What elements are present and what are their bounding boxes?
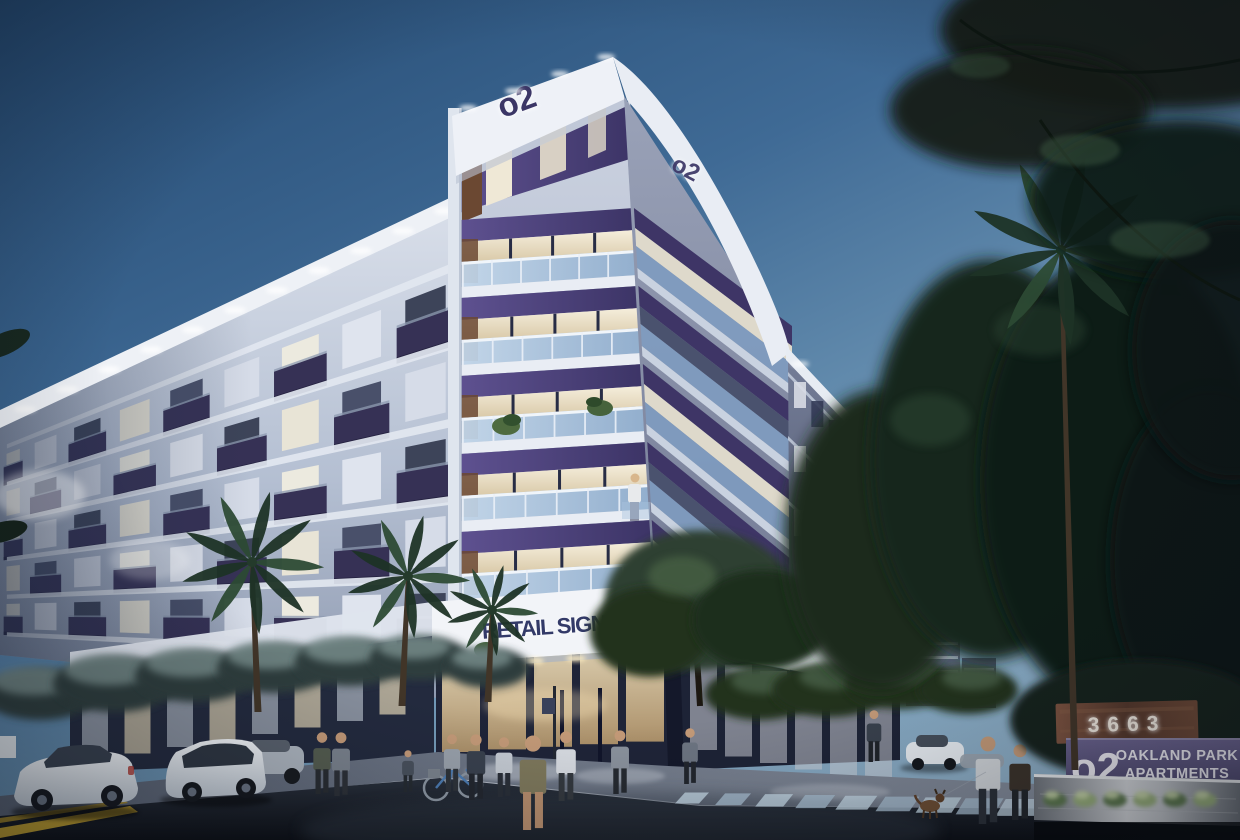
architectural-rendering: o2 o2 o2 o2: [0, 0, 1240, 840]
scene-canvas: o2 o2 o2 o2: [0, 0, 1240, 840]
vignette-overlay: [0, 0, 1240, 840]
